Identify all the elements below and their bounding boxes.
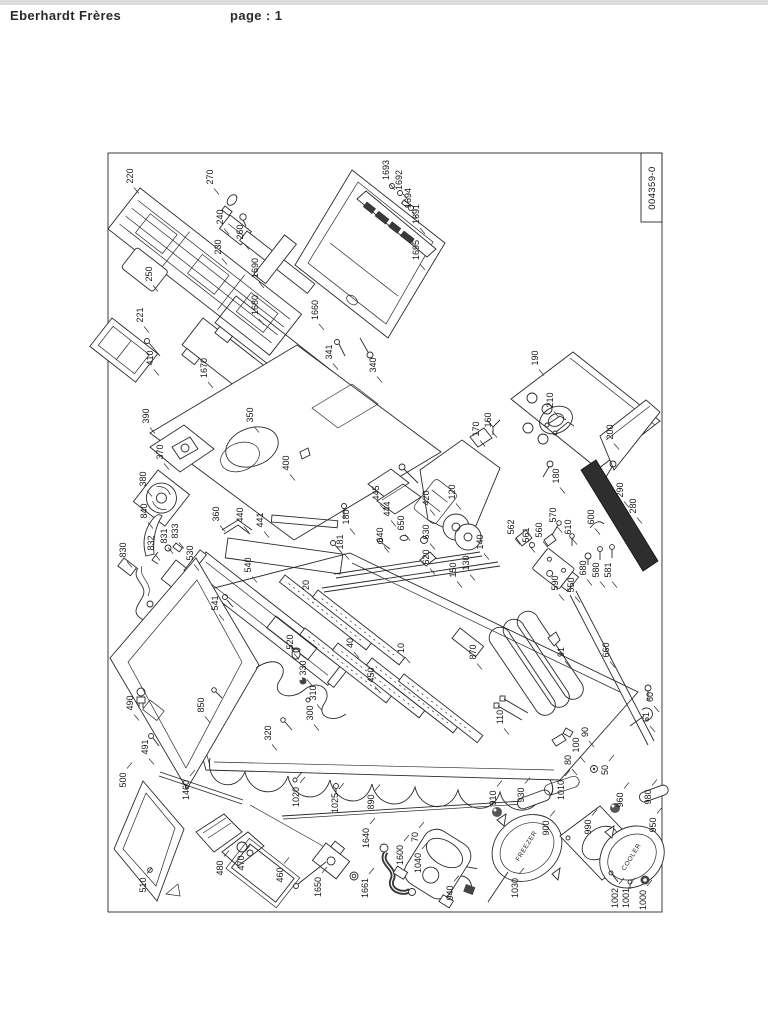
page-number-label: page : 1: [230, 8, 282, 23]
part-number-label: 200: [605, 424, 615, 439]
part-number-label: 560: [534, 522, 544, 537]
part-number-label: 445: [371, 485, 381, 500]
part-number-label: 960: [615, 792, 625, 807]
label-leader-line: [504, 729, 509, 735]
label-leader-line: [560, 488, 565, 494]
part-number-label: 1040: [413, 853, 423, 873]
part-number-label: 530: [185, 545, 195, 560]
label-leader-line: [595, 529, 600, 535]
part-number-label: 561: [521, 527, 531, 542]
part-number-label: 390: [141, 408, 151, 423]
tube-890: [282, 780, 553, 819]
label-leader-line: [525, 778, 530, 784]
part-number-label: 640: [375, 527, 385, 542]
part-number-label: 980: [643, 789, 653, 804]
part-number-label: 1670: [199, 358, 209, 378]
tube-1460: [159, 772, 243, 804]
part-number-label: 490: [125, 695, 135, 710]
part-number-label: 660: [601, 642, 611, 657]
label-leader-line: [264, 532, 269, 538]
label-leader-line: [377, 377, 382, 383]
part-number-label: 520: [285, 634, 295, 649]
document-number: 004359-0: [647, 166, 658, 209]
page-top-edge: [0, 0, 768, 5]
screws-340-341: [335, 338, 374, 358]
part-number-label: 1030: [510, 878, 520, 898]
part-number-label: 581: [603, 562, 613, 577]
part-number-label: 562: [506, 519, 516, 534]
label-leader-line: [580, 757, 585, 763]
part-number-label: 220: [125, 168, 135, 183]
part-number-label: 1460: [181, 780, 191, 800]
part-number-label: 40: [345, 638, 355, 648]
label-leader-line: [587, 580, 592, 586]
part-number-label: 61: [641, 712, 651, 722]
label-leader-line: [208, 382, 213, 388]
part-number-label: 890: [366, 794, 376, 809]
label-leader-line: [470, 575, 475, 581]
part-number-label: 440: [235, 507, 245, 522]
label-leader-line: [154, 370, 159, 376]
part-number-label: 230: [213, 239, 223, 254]
label-leader-line: [477, 664, 482, 670]
label-leader-line: [369, 868, 374, 874]
part-number-label: 10: [396, 643, 406, 653]
part-number-label: 221: [135, 307, 145, 322]
label-leader-line: [375, 785, 380, 791]
part-number-label: 300: [305, 705, 315, 720]
label-leader-line: [557, 527, 562, 533]
part-number-label: 831: [159, 528, 169, 543]
part-number-label: 60: [645, 692, 655, 702]
part-number-label: 270: [205, 169, 215, 184]
part-number-label: 90: [580, 727, 590, 737]
label-leader-line: [600, 582, 605, 588]
part-number-label: 832: [146, 535, 156, 550]
label-leader-line: [149, 759, 154, 765]
part-number-label: 170: [471, 421, 481, 436]
part-number-label: 120: [447, 484, 457, 499]
label-leader-line: [339, 783, 344, 789]
label-leader-line: [214, 189, 219, 195]
part-number-label: 850: [196, 697, 206, 712]
part-number-label: 280: [628, 498, 638, 513]
part-number-label: 1001: [621, 888, 631, 908]
title-block: 004359-0: [641, 153, 662, 222]
part-number-label: 470: [236, 855, 246, 870]
part-number-label: 80: [563, 755, 573, 765]
label-leader-line: [624, 783, 629, 789]
label-leader-line: [344, 554, 349, 560]
part-number-label: 290: [615, 482, 625, 497]
part-number-label: 833: [170, 523, 180, 538]
label-leader-line: [307, 680, 312, 686]
part-number-label: 140: [475, 534, 485, 549]
part-number-label: 830: [118, 542, 128, 557]
label-leader-line: [609, 755, 614, 761]
part-number-label: 310: [308, 685, 318, 700]
part-number-label: 400: [281, 455, 291, 470]
part-number-label: 1640: [361, 828, 371, 848]
label-leader-line: [572, 769, 577, 775]
part-number-label: 570: [548, 507, 558, 522]
label-leader-line: [550, 811, 555, 817]
part-number-label: 460: [275, 867, 285, 882]
part-number-label: 620: [421, 549, 431, 564]
part-number-label: 510: [138, 877, 148, 892]
part-number-label: 610: [563, 519, 573, 534]
label-leader-line: [370, 818, 375, 824]
part-number-label: 930: [516, 787, 526, 802]
part-number-label: 910: [488, 790, 498, 805]
label-leader-line: [272, 745, 277, 751]
part-number-label: 444: [382, 501, 392, 516]
part-number-label: 1002: [610, 888, 620, 908]
small-frame-221: [90, 318, 158, 382]
part-number-label: 1600: [395, 845, 405, 865]
label-leader-line: [284, 858, 289, 864]
wiring-830: [118, 558, 153, 622]
label-leader-line: [612, 582, 617, 588]
part-number-label: 370: [155, 444, 165, 459]
part-number-label: 1693: [381, 160, 391, 180]
part-number-label: 630: [421, 524, 431, 539]
part-number-label: 1020: [291, 787, 301, 807]
label-leader-line: [559, 595, 564, 601]
part-number-label: 950: [648, 817, 658, 832]
part-number-label: 260: [235, 224, 245, 239]
part-number-label: 1691: [411, 204, 421, 224]
part-number-label: 340: [368, 357, 378, 372]
label-leader-line: [405, 657, 410, 663]
part-number-label: 1660: [310, 300, 320, 320]
label-leader-line: [155, 555, 160, 561]
part-number-label: 500: [118, 772, 128, 787]
label-leader-line: [650, 726, 655, 732]
part-number-label: 590: [550, 575, 560, 590]
part-number-label: 1000: [638, 890, 648, 910]
part-number-label: 50: [600, 765, 610, 775]
part-number-label: 541: [210, 595, 220, 610]
part-number-label: 1010: [556, 780, 566, 800]
part-number-label: 450: [366, 667, 376, 682]
part-number-label: 1692: [394, 170, 404, 190]
part-number-label: 410: [145, 350, 155, 365]
part-number-label: 441: [255, 512, 265, 527]
part-number-label: 1680: [250, 295, 260, 315]
label-leader-line: [457, 582, 462, 588]
part-number-label: 110: [495, 710, 505, 724]
part-number-label: 91: [556, 647, 566, 657]
part-number-label: 870: [468, 644, 478, 659]
part-number-label: 1661: [360, 878, 370, 898]
label-leader-line: [419, 822, 424, 828]
evaporator-coil: [489, 611, 583, 715]
part-number-label: 20: [301, 580, 311, 590]
part-number-label: 580: [591, 562, 601, 577]
part-number-label: 240: [215, 209, 225, 224]
part-number-label: 1650: [313, 877, 323, 897]
part-number-label: 160: [483, 412, 493, 427]
part-number-label: 491: [140, 739, 150, 754]
label-leader-line: [497, 781, 502, 787]
part-number-label: 320: [263, 725, 273, 740]
label-leader-line: [652, 780, 657, 786]
part-number-label: 190: [530, 350, 540, 365]
part-number-label: 100: [571, 737, 581, 752]
part-number-label: 210: [545, 392, 555, 407]
part-number-label: 330: [298, 660, 308, 675]
label-leader-line: [333, 364, 338, 370]
part-number-label: 540: [243, 557, 253, 572]
part-number-label: 990: [583, 819, 593, 834]
label-leader-line: [637, 518, 642, 524]
part-number-label: 480: [215, 860, 225, 875]
part-number-label: 900: [541, 820, 551, 835]
label-leader-line: [657, 808, 662, 814]
label-leader-line: [134, 715, 139, 721]
label-leader-line: [127, 763, 132, 769]
part-number-label: 180: [341, 509, 351, 524]
label-leader-line: [484, 554, 489, 560]
label-leader-line: [350, 529, 355, 535]
part-number-label: 341: [324, 344, 334, 359]
part-number-label: 550: [566, 577, 576, 592]
part-number-label: 350: [245, 407, 255, 422]
compressor-940: [393, 820, 484, 909]
part-number-label: 940: [445, 885, 455, 900]
part-number-label: 360: [211, 506, 221, 521]
label-leader-line: [164, 464, 169, 470]
label-leader-line: [319, 324, 324, 330]
part-number-label: 250: [144, 266, 154, 281]
part-number-label: 1690: [250, 258, 260, 278]
label-leader-line: [430, 544, 435, 550]
label-leader-line: [572, 539, 577, 545]
profile-bars: [322, 552, 500, 592]
part-number-label: 680: [578, 560, 588, 575]
document-page: Eberhardt Frères page : 1 004359-0: [0, 0, 768, 1024]
bottom-panel-500: [114, 781, 184, 901]
label-leader-line: [300, 777, 305, 783]
part-number-label: 180: [551, 468, 561, 483]
part-number-label: 600: [586, 509, 596, 524]
label-leader-line: [404, 835, 409, 841]
part-number-label: 130: [461, 555, 471, 570]
part-number-label: 420: [421, 490, 431, 505]
label-leader-line: [654, 706, 659, 712]
label-leader-line: [144, 327, 149, 333]
side-rail-660: [548, 591, 654, 745]
part-number-label: 650: [396, 515, 406, 530]
part-number-label: 840: [139, 503, 149, 518]
part-number-label: 1695: [411, 240, 421, 260]
company-name: Eberhardt Frères: [10, 8, 121, 23]
label-leader-line: [317, 705, 322, 711]
exploded-parts-drawing: 004359-0: [0, 0, 768, 1024]
part-number-label: 181: [335, 534, 345, 549]
label-leader-line: [539, 370, 544, 376]
label-leader-line: [314, 725, 319, 731]
part-number-label: 1025: [330, 793, 340, 813]
part-number-label: 70: [410, 832, 420, 842]
part-number-label: 150: [448, 562, 458, 577]
part-number-label: 380: [138, 471, 148, 486]
